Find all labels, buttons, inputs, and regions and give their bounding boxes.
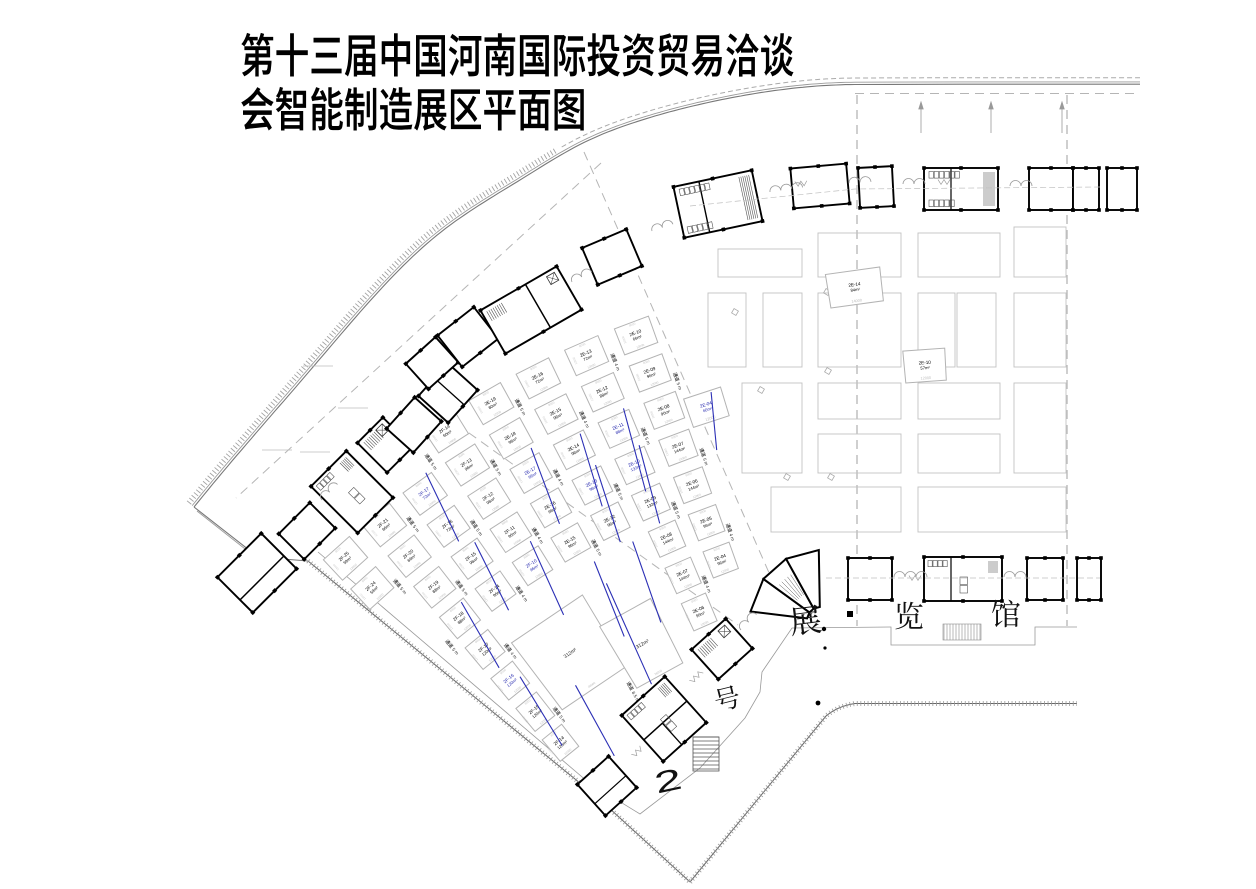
svg-text:57m²: 57m² [920,365,930,371]
svg-text:12000: 12000 [920,376,931,381]
